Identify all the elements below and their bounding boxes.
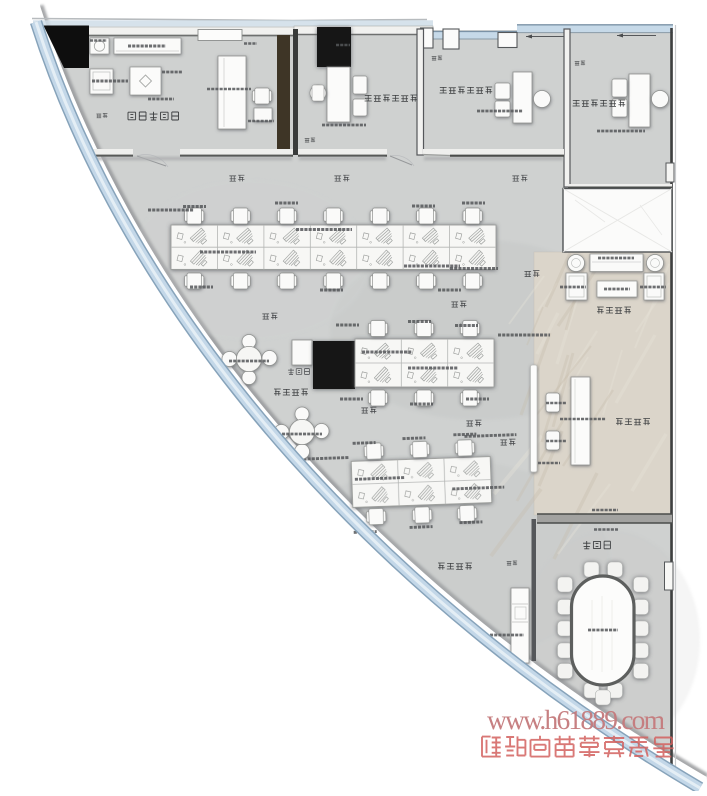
svg-text:www.h61889.com: www.h61889.com — [487, 704, 665, 735]
